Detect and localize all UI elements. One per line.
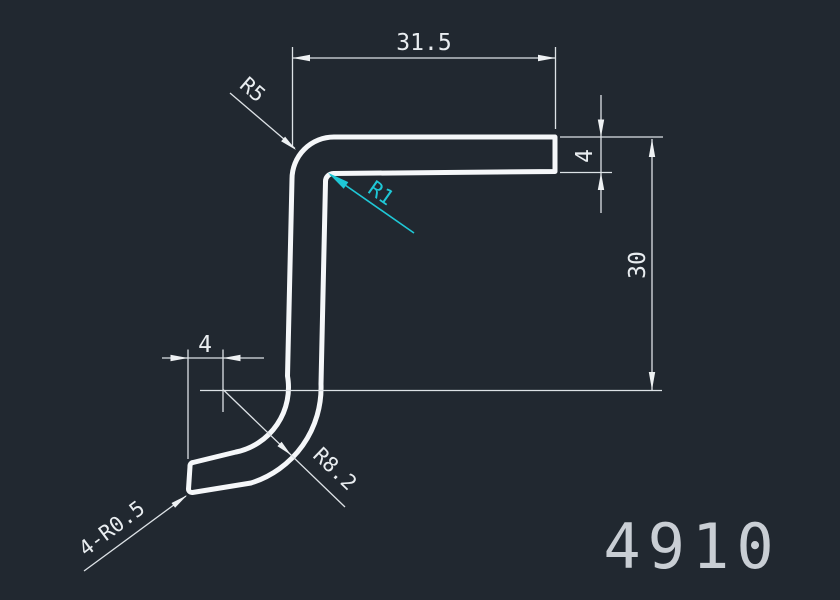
leader-inner-bend-radius: R1: [328, 173, 414, 233]
dim-label-flange-thickness: 4: [572, 149, 598, 163]
dimension-height: 30: [200, 139, 662, 391]
leader-arrow: [172, 495, 188, 508]
leader-end-corner-radius: 4-R0.5: [74, 495, 187, 571]
dimension-flange-thickness: 4: [560, 95, 663, 213]
dim-arrow-down: [649, 372, 655, 390]
dim-arrow-right: [538, 55, 556, 61]
drawing-number: 4910: [603, 510, 780, 583]
dim-arrow-left: [293, 55, 311, 61]
dim-arrow-left: [223, 355, 241, 361]
dimension-bottom-flat: 4: [162, 332, 264, 459]
leader-label-r8-2: R8.2: [308, 443, 361, 495]
dim-arrow-down: [598, 120, 604, 138]
leader-label-r1: R1: [364, 176, 398, 210]
cad-drawing-canvas[interactable]: 31.5 4 30 4: [0, 0, 840, 600]
dim-arrow-right: [171, 355, 189, 361]
dim-arrow-up: [598, 173, 604, 191]
dim-label-top-width: 31.5: [396, 30, 451, 56]
dim-arrow-up: [649, 139, 655, 157]
dim-label-bottom-flat: 4: [198, 332, 212, 358]
cad-viewport: 31.5 4 30 4: [0, 0, 840, 600]
leader-outer-bend-radius: R5: [230, 72, 296, 150]
dimension-top-width: 31.5: [293, 30, 556, 147]
dim-label-height: 30: [625, 251, 651, 279]
